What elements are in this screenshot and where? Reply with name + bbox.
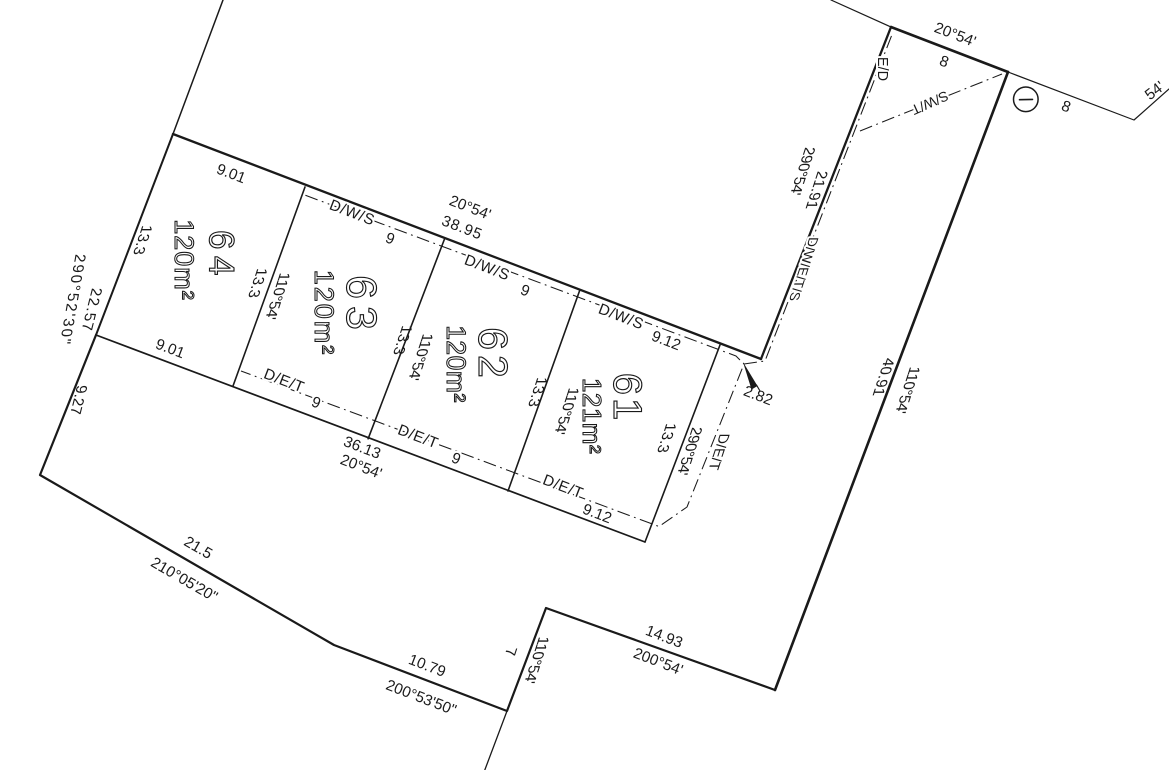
svg-text:64: 64 (202, 230, 241, 282)
svg-text:7: 7 (500, 648, 519, 657)
svg-text:61: 61 (605, 373, 649, 424)
svg-text:120m²: 120m² (309, 270, 339, 357)
svg-text:120m²: 120m² (169, 219, 199, 301)
svg-text:62: 62 (470, 327, 516, 383)
svg-text:63: 63 (337, 275, 385, 337)
svg-text:121m²: 121m² (577, 378, 607, 454)
svg-text:E/D: E/D (874, 57, 890, 81)
svg-text:120m²: 120m² (441, 325, 471, 403)
